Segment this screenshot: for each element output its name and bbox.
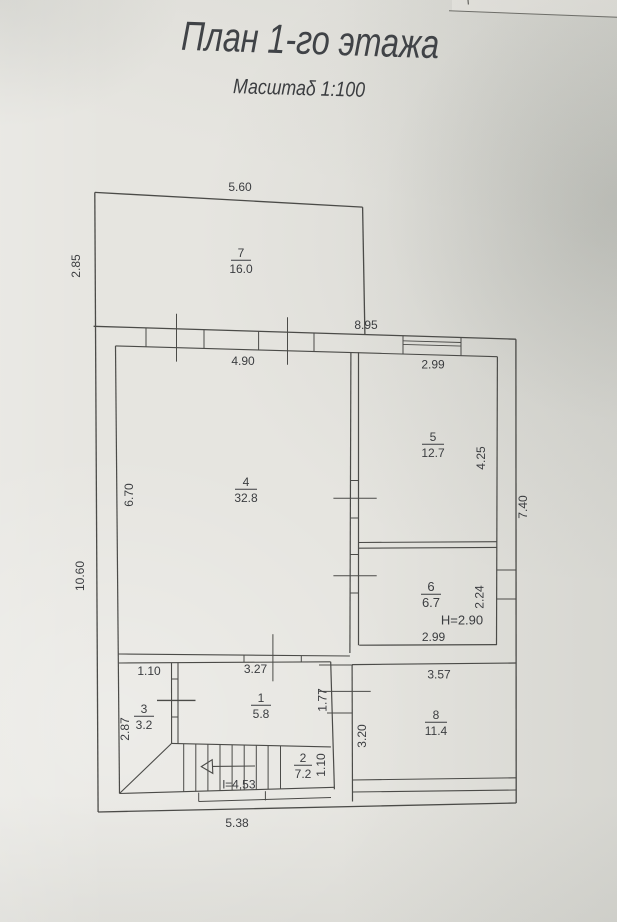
svg-text:7: 7 (238, 246, 245, 260)
svg-text:3.27: 3.27 (244, 662, 268, 676)
svg-text:7.40: 7.40 (516, 495, 530, 519)
svg-text:3.2: 3.2 (136, 718, 153, 732)
svg-text:12.7: 12.7 (421, 446, 445, 460)
svg-text:6.7: 6.7 (422, 595, 440, 610)
svg-text:1: 1 (258, 691, 265, 705)
svg-text:5.8: 5.8 (253, 707, 270, 721)
svg-text:4.25: 4.25 (474, 446, 488, 470)
svg-text:5: 5 (430, 430, 437, 444)
svg-text:16.0: 16.0 (229, 262, 253, 276)
svg-text:2.99: 2.99 (422, 630, 446, 644)
svg-text:8: 8 (433, 708, 440, 722)
svg-text:4: 4 (243, 475, 250, 489)
svg-text:7.2: 7.2 (295, 767, 312, 781)
svg-text:32.8: 32.8 (234, 491, 258, 505)
svg-text:3.57: 3.57 (427, 668, 451, 682)
svg-text:2.85: 2.85 (69, 254, 83, 278)
svg-text:Масштаδ 1:100: Масштаδ 1:100 (233, 75, 366, 102)
svg-text:10.60: 10.60 (73, 561, 87, 591)
svg-text:H=2.90: H=2.90 (441, 613, 483, 628)
svg-text:6: 6 (427, 579, 434, 594)
svg-text:4.90: 4.90 (231, 354, 255, 368)
svg-text:План 1-го этажа: План 1-го этажа (181, 13, 440, 68)
svg-text:l=4,53: l=4,53 (222, 778, 255, 792)
svg-text:1.10: 1.10 (137, 664, 161, 678)
svg-text:5.60: 5.60 (228, 180, 252, 194)
svg-text:2.99: 2.99 (421, 358, 445, 372)
svg-text:6.70: 6.70 (122, 483, 136, 507)
svg-text:2: 2 (300, 751, 307, 765)
svg-text:2.87: 2.87 (118, 717, 132, 741)
svg-text:3: 3 (141, 702, 148, 716)
svg-text:2.24: 2.24 (473, 585, 487, 609)
svg-text:8.95: 8.95 (354, 318, 378, 332)
svg-text:3.20: 3.20 (355, 724, 369, 748)
svg-text:5.38: 5.38 (225, 816, 249, 830)
svg-text:1.10: 1.10 (314, 753, 328, 777)
svg-text:1.77: 1.77 (316, 688, 330, 712)
svg-text:11.4: 11.4 (425, 724, 448, 738)
